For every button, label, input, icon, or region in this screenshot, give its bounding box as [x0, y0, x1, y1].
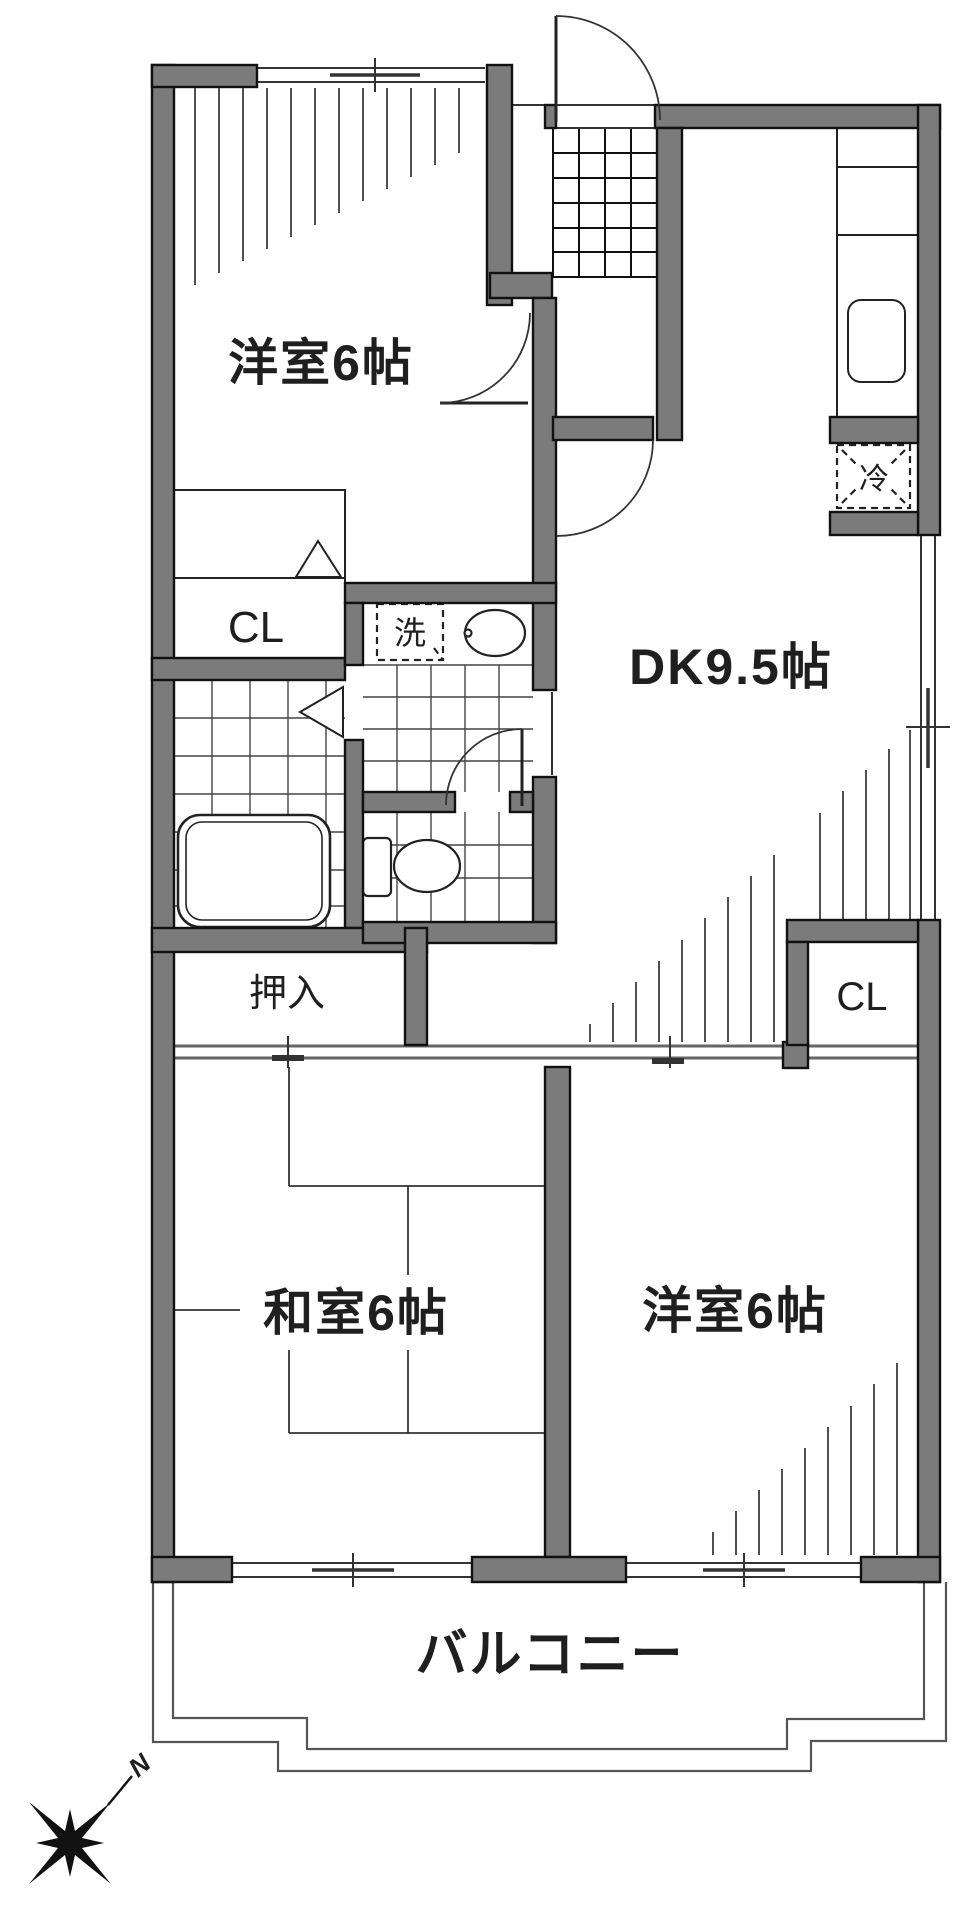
shoe-cabinet	[553, 128, 657, 277]
bathtub	[178, 815, 330, 927]
label-bedroom-nw: 洋室6帖	[228, 335, 414, 391]
label-oshiire: 押入	[249, 973, 325, 1015]
bedroom-nw-door	[440, 313, 530, 403]
wash-basin	[465, 610, 526, 656]
label-balcony: バルコニー	[416, 1626, 685, 1684]
floor-plan-page: N 洋室6帖 DK9.5帖 和室6帖 洋室6帖 バルコニー CL CL 押入 洗…	[0, 0, 960, 1911]
hall-dk-door-leaf	[553, 417, 653, 440]
toilet-fixture	[363, 838, 460, 896]
entrance-door	[556, 16, 660, 122]
kitchen-counter	[837, 128, 918, 437]
window-top	[257, 58, 485, 92]
washroom-door	[533, 690, 556, 777]
window-hatch-se	[713, 1363, 897, 1555]
label-japanese-room: 和室6帖	[263, 1285, 449, 1341]
label-refrigerator: 冷	[859, 463, 889, 496]
closet-nw-folding-door	[296, 541, 341, 577]
label-bedroom-se: 洋室6帖	[642, 1283, 828, 1339]
label-closet-nw: CL	[228, 603, 284, 652]
label-dining-kitchen: DK9.5帖	[629, 639, 833, 695]
label-washer: 洗	[394, 615, 426, 651]
hall-dk-door	[557, 440, 653, 536]
bathroom-folding-door	[300, 687, 343, 737]
window-hatch-nw	[195, 88, 459, 285]
compass-star	[29, 1802, 111, 1884]
fusuma-handle	[652, 1058, 684, 1064]
compass-north-label: N	[123, 1747, 158, 1783]
window-balcony-west	[232, 1553, 472, 1587]
kitchen-sink	[848, 300, 905, 382]
floor-plan-svg: N 洋室6帖 DK9.5帖 和室6帖 洋室6帖 バルコニー CL CL 押入 洗…	[0, 0, 960, 1911]
window-balcony-east	[626, 1553, 861, 1587]
fusuma-handle	[272, 1055, 304, 1061]
window-right	[906, 535, 950, 920]
compass-rose: N	[29, 1747, 157, 1884]
label-closet-se: CL	[836, 975, 887, 1019]
tatami-lines	[174, 1067, 545, 1433]
washroom-tile-floor	[363, 665, 533, 792]
